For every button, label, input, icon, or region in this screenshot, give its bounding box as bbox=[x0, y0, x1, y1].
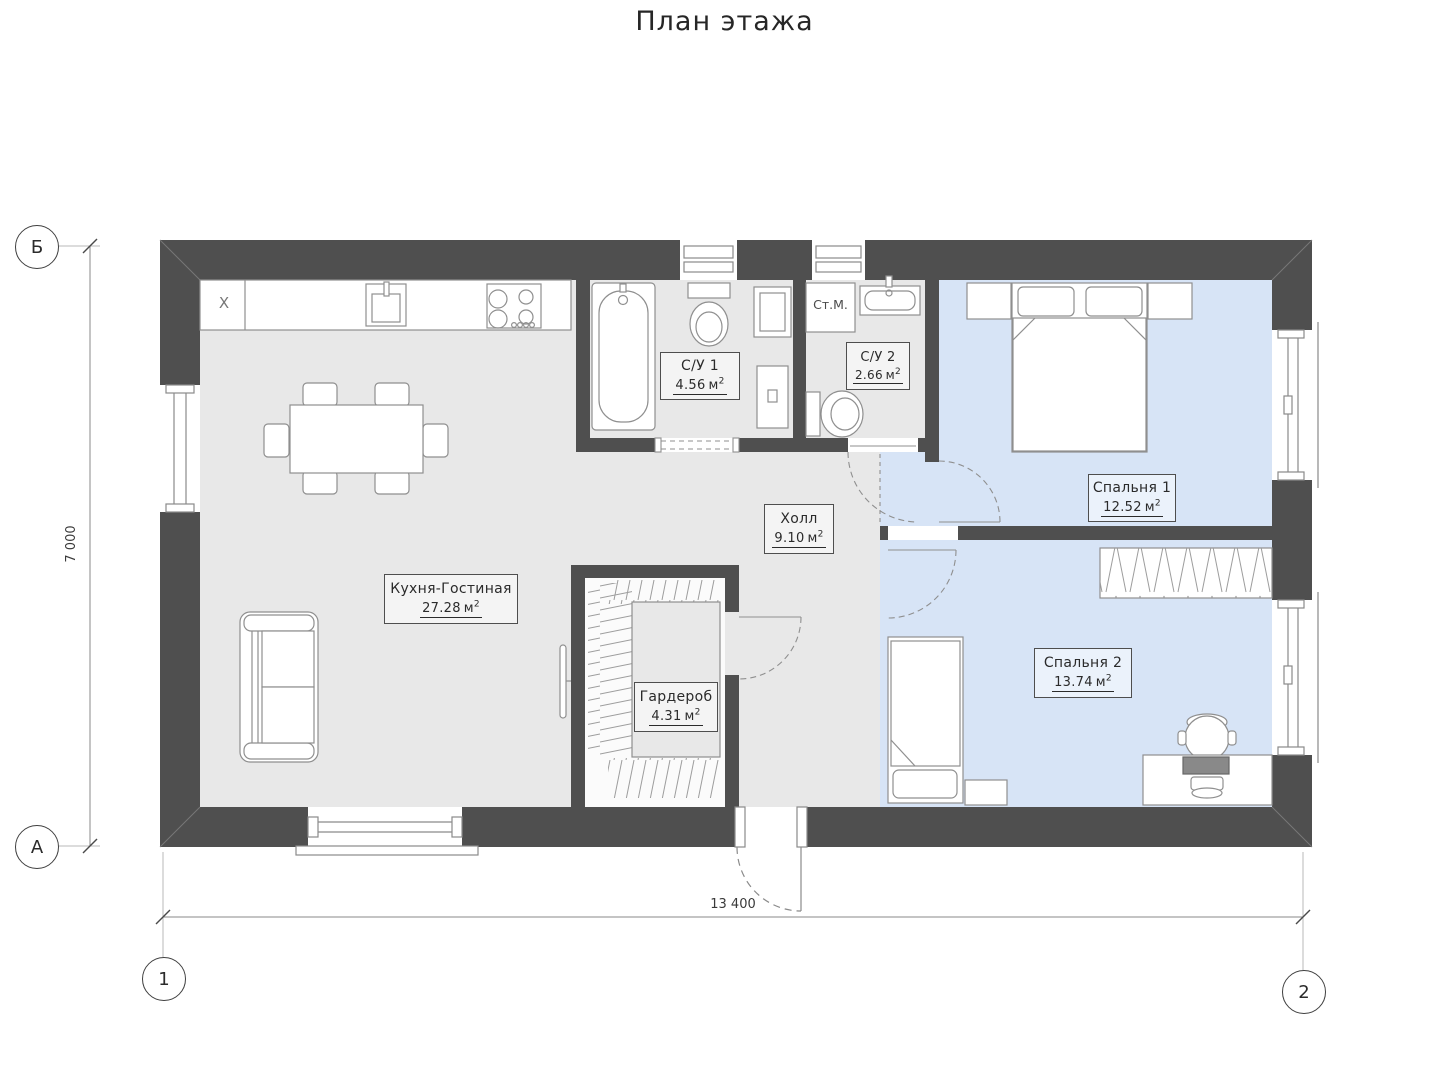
wall-bath-hall-a bbox=[576, 438, 657, 452]
room-label-bedroom-1: Спальня 1 12.52 м2 bbox=[1088, 474, 1176, 522]
grid-axis-label: А bbox=[31, 837, 43, 858]
window-top-1 bbox=[680, 240, 737, 280]
wall-bedroom-divider-a bbox=[880, 526, 888, 540]
wall-wardrobe-right-a bbox=[725, 565, 739, 612]
room-area: 4.31 м2 bbox=[649, 707, 702, 726]
window-right-2 bbox=[1272, 592, 1318, 763]
sink-bath1 bbox=[754, 287, 791, 337]
room-name: Спальня 1 bbox=[1093, 479, 1171, 498]
single-bed bbox=[888, 637, 963, 803]
room-label-bedroom-2: Спальня 2 13.74 м2 bbox=[1034, 648, 1132, 698]
room-area: 12.52 м2 bbox=[1101, 498, 1163, 517]
room-label-bathroom-2: С/У 2 2.66 м2 bbox=[846, 342, 910, 390]
toilet-bath1 bbox=[688, 283, 730, 346]
dimension-height-label: 7 000 bbox=[64, 502, 80, 586]
pillow bbox=[893, 770, 957, 798]
room-area: 13.74 м2 bbox=[1052, 673, 1114, 692]
kitchen-unit-x-label: X bbox=[206, 294, 242, 312]
floor-kitchen-passage bbox=[576, 452, 590, 565]
floor-plan-drawing bbox=[0, 0, 1449, 1080]
wall-bath1-bath2 bbox=[793, 280, 806, 452]
floor-vestibule bbox=[880, 452, 939, 526]
room-name: Спальня 2 bbox=[1044, 654, 1122, 673]
room-area: 27.28 м2 bbox=[420, 599, 482, 618]
room-name: Гардероб bbox=[640, 688, 713, 707]
wall-bath2-bedroom1 bbox=[925, 280, 939, 462]
chair bbox=[375, 471, 409, 494]
wall-bedroom-divider-b bbox=[958, 526, 1272, 540]
grid-axis-label: 2 bbox=[1298, 982, 1309, 1003]
window-right-1 bbox=[1272, 322, 1318, 488]
nightstand bbox=[967, 283, 1011, 319]
room-name: Кухня-Гостиная bbox=[390, 580, 512, 599]
room-label-bathroom-1: С/У 1 4.56 м2 bbox=[660, 352, 740, 400]
toilet-bath2 bbox=[806, 391, 863, 437]
pillow bbox=[1018, 287, 1074, 316]
wall-wardrobe-left bbox=[571, 578, 585, 807]
nightstand bbox=[965, 780, 1007, 805]
grid-axis-b: Б bbox=[15, 225, 59, 269]
wall-bath-hall-c bbox=[918, 438, 939, 452]
towel-cabinet bbox=[757, 366, 788, 428]
door-bathroom-1-sliding bbox=[655, 438, 739, 452]
chair bbox=[423, 424, 448, 457]
grid-axis-a: А bbox=[15, 825, 59, 869]
office-chair bbox=[1185, 716, 1229, 760]
grid-axis-2: 2 bbox=[1282, 970, 1326, 1014]
blanket bbox=[891, 641, 960, 766]
dining-table bbox=[290, 405, 423, 473]
window-left bbox=[160, 385, 200, 512]
laptop bbox=[1183, 757, 1229, 774]
grid-axis-1: 1 bbox=[142, 957, 186, 1001]
room-name: С/У 1 bbox=[681, 357, 719, 376]
wall-bath-hall-b bbox=[737, 438, 848, 452]
stove bbox=[487, 284, 541, 328]
chair bbox=[264, 424, 289, 457]
nightstand bbox=[1148, 283, 1192, 319]
entrance-door bbox=[735, 807, 807, 911]
closet-shelf bbox=[1100, 548, 1272, 598]
wall-kitchen-bath1 bbox=[576, 280, 590, 452]
chair bbox=[303, 471, 337, 494]
bathtub bbox=[592, 283, 655, 430]
sofa bbox=[240, 612, 318, 762]
dimension-width-label: 13 400 bbox=[688, 897, 778, 913]
room-name: Холл bbox=[780, 510, 817, 529]
room-area: 4.56 м2 bbox=[673, 376, 726, 395]
washing-machine-label: Ст.М. bbox=[806, 297, 855, 312]
chair bbox=[375, 383, 409, 406]
room-label-hall: Холл 9.10 м2 bbox=[764, 504, 834, 554]
pillow bbox=[1086, 287, 1142, 316]
room-area: 2.66 м2 bbox=[853, 366, 903, 383]
room-label-wardrobe: Гардероб 4.31 м2 bbox=[634, 682, 718, 732]
floor-plan-page: План этажа bbox=[0, 0, 1449, 1080]
room-label-kitchen-living: Кухня-Гостиная 27.28 м2 bbox=[384, 574, 518, 624]
chair bbox=[303, 383, 337, 406]
window-top-2 bbox=[812, 240, 865, 280]
kitchen-sink bbox=[366, 282, 406, 326]
blanket bbox=[1013, 318, 1146, 451]
room-name: С/У 2 bbox=[860, 349, 895, 367]
room-area: 9.10 м2 bbox=[772, 529, 825, 548]
grid-axis-label: 1 bbox=[158, 969, 169, 990]
wall-wardrobe-right-b bbox=[725, 675, 739, 807]
wall-wardrobe-top bbox=[571, 565, 739, 578]
grid-axis-label: Б bbox=[31, 237, 43, 258]
window-kitchen-bottom bbox=[296, 807, 478, 855]
